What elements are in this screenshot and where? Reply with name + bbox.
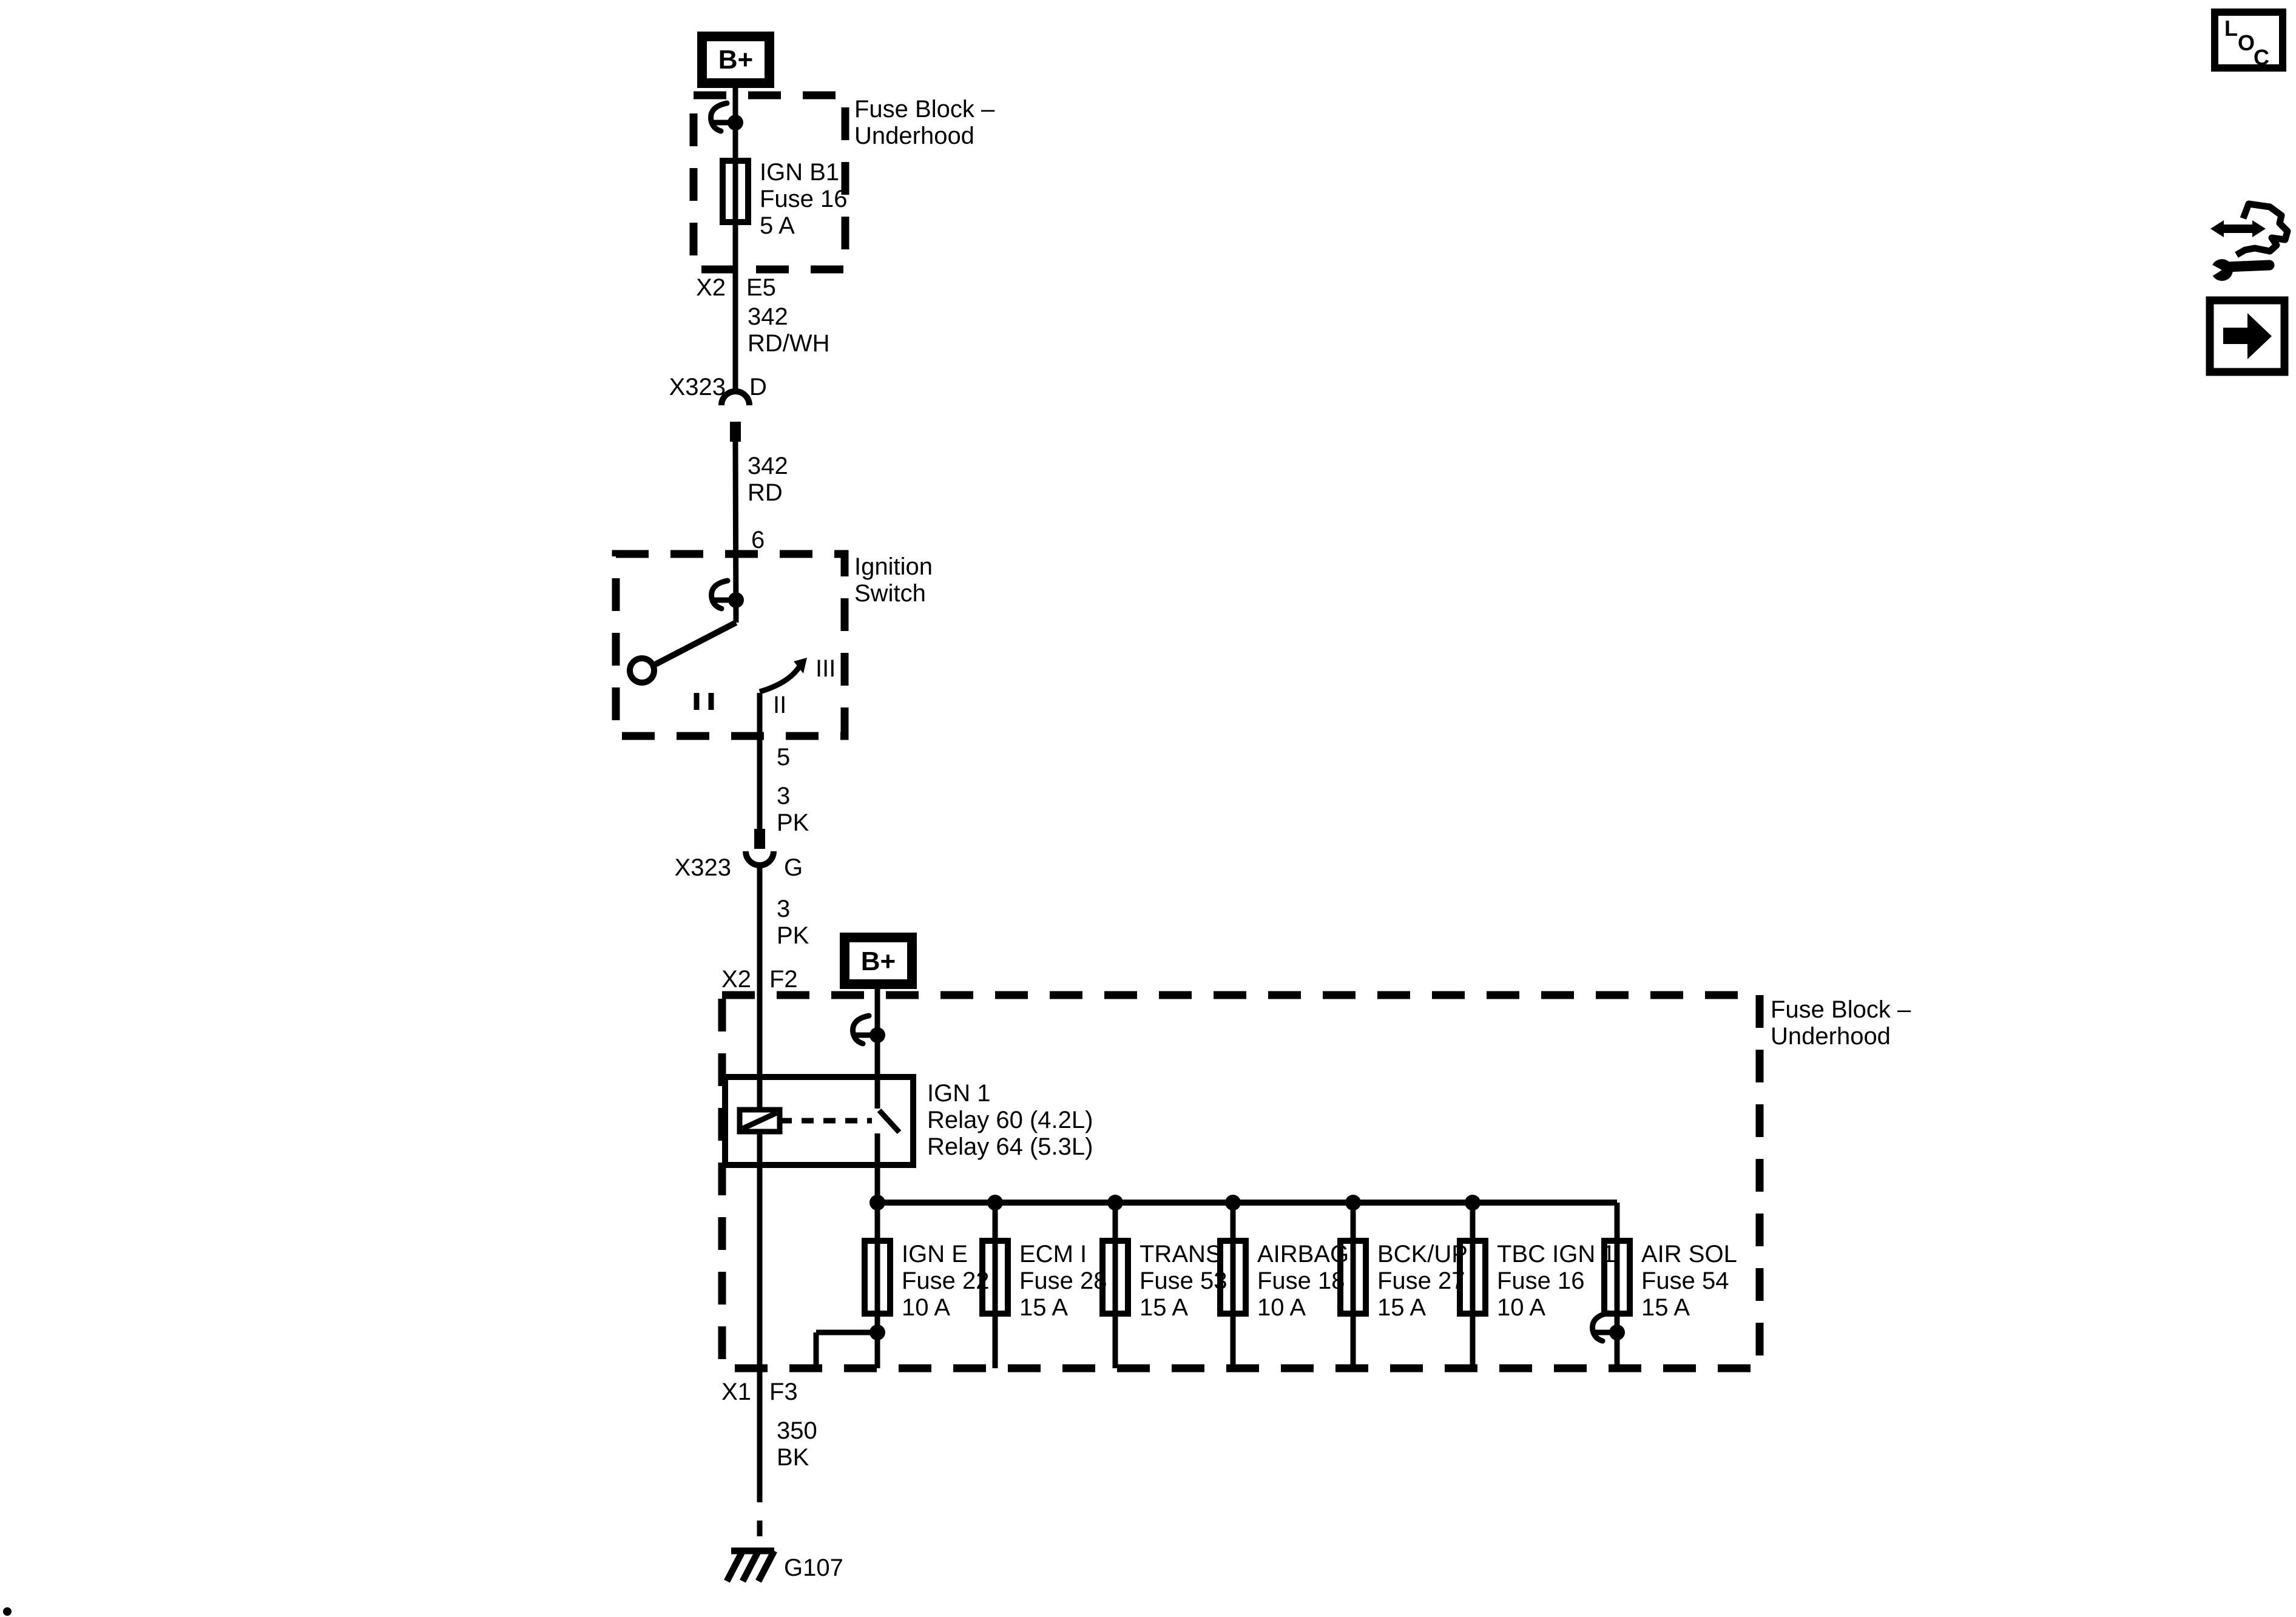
fuse-label-name: TRANS — [1140, 1241, 1222, 1268]
relay-label-line3: Relay 64 (5.3L) — [927, 1133, 1093, 1160]
fuse-block-main-label-line1: Fuse Block – — [1771, 996, 1911, 1023]
ignition-position-ii-label: II — [773, 692, 786, 718]
fuse-ign-b1-id: Fuse 16 — [760, 186, 848, 212]
ignition-switch-label-line1: Ignition — [854, 553, 933, 580]
pin-f3-label: F3 — [769, 1379, 798, 1405]
service-hand-wrench-icon — [2205, 204, 2288, 281]
fuse-block-top-label-line2: Underhood — [854, 123, 974, 149]
connector-x1f3-label: X1 — [654, 1379, 751, 1405]
wire-350bk-circuit: 350 — [777, 1417, 817, 1444]
fuse-label-id: Fuse 22 — [902, 1268, 990, 1294]
fuse-label-id: Fuse 18 — [1257, 1268, 1345, 1294]
fuse-ign-b1-amps: 5 A — [760, 212, 795, 239]
wire-3pk-upper-color: PK — [777, 809, 809, 836]
connector-x2-label: X2 — [629, 274, 726, 301]
fuse-label-amps: 15 A — [1019, 1294, 1068, 1321]
ignition-position-iii-label: III — [815, 655, 836, 682]
fuse-label-id: Fuse 54 — [1641, 1268, 1729, 1294]
fuse-label-amps: 15 A — [1140, 1294, 1188, 1321]
wire-342rdwh-circuit: 342 — [748, 303, 788, 330]
wire-342rd-color: RD — [748, 479, 783, 506]
fuse-block-top-label-line1: Fuse Block – — [854, 96, 994, 123]
fuse-label-name: BCK/UP — [1377, 1241, 1468, 1268]
connector-x2f2-label: X2 — [654, 966, 751, 993]
wiring-diagram-canvas: B+ Fuse Block – Underhood IGN B1 Fuse 16… — [0, 0, 2296, 1617]
loc-letter-c: C — [2254, 45, 2269, 70]
current-tap-icon — [1593, 1313, 1625, 1341]
stray-mark — [3, 1607, 12, 1616]
ignition-switch-box — [616, 554, 845, 736]
wire-342rdwh-color: RD/WH — [748, 330, 830, 357]
ignition-pin-in-label: 6 — [751, 527, 765, 553]
ground-g107-label: G107 — [784, 1555, 843, 1581]
wire-3pk-upper-circuit: 3 — [777, 783, 790, 809]
pin-d-label: D — [749, 374, 767, 400]
wire-3pk-lower-color: PK — [777, 922, 809, 949]
fuse-label-name: TBC IGN 1 — [1497, 1241, 1616, 1268]
fuse-label-amps: 10 A — [1497, 1294, 1545, 1321]
ignition-switch-label-line2: Switch — [854, 580, 926, 607]
connector-x323d-label: X323 — [629, 374, 726, 400]
fuse-label-amps: 10 A — [902, 1294, 950, 1321]
pin-g-label: G — [784, 854, 803, 881]
fuse-label-name: IGN E — [902, 1241, 968, 1268]
fuse-label-name: AIR SOL — [1641, 1241, 1737, 1268]
fuse-label-id: Fuse 27 — [1377, 1268, 1465, 1294]
relay-label-line2: Relay 60 (4.2L) — [927, 1107, 1093, 1133]
fuse-bus-line — [869, 1195, 1617, 1210]
fuse-label-name: AIRBAG — [1257, 1241, 1349, 1268]
wire-342rd-circuit: 342 — [748, 453, 788, 479]
wire-350bk-color: BK — [777, 1444, 809, 1471]
fuse-label-id: Fuse 53 — [1140, 1268, 1227, 1294]
pin-f2-label: F2 — [769, 966, 798, 993]
fuse-label-id: Fuse 28 — [1019, 1268, 1107, 1294]
fuse-ign-b1-name: IGN B1 — [760, 159, 839, 186]
current-tap-icon — [853, 1016, 885, 1044]
connector-x323g-label: X323 — [634, 854, 731, 881]
ground-icon — [727, 1551, 774, 1581]
ign1-relay-symbol — [725, 1077, 913, 1203]
ignition-pin-out-label: 5 — [777, 744, 790, 771]
fuse-label-name: ECM I — [1019, 1241, 1087, 1268]
fuse-label-amps: 10 A — [1257, 1294, 1306, 1321]
loc-letter-o: O — [2238, 30, 2255, 56]
inline-connector-g-icon — [746, 829, 774, 865]
loc-letter-l: L — [2224, 16, 2238, 41]
b-plus-label-mid: B+ — [845, 947, 912, 977]
diagram-line-art — [0, 0, 2296, 1617]
b-plus-label-top: B+ — [702, 45, 769, 75]
current-tap-icon — [711, 103, 743, 131]
pin-e5-label: E5 — [746, 274, 776, 301]
fuse-label-amps: 15 A — [1641, 1294, 1690, 1321]
wire-3pk-lower-circuit: 3 — [777, 896, 790, 922]
next-page-arrow-box — [2210, 300, 2284, 372]
relay-label-line1: IGN 1 — [927, 1080, 990, 1107]
fuse-block-main-label-line2: Underhood — [1771, 1023, 1891, 1050]
fuse-label-amps: 15 A — [1377, 1294, 1426, 1321]
fuse-label-id: Fuse 16 — [1497, 1268, 1585, 1294]
current-tap-icon — [712, 581, 744, 609]
